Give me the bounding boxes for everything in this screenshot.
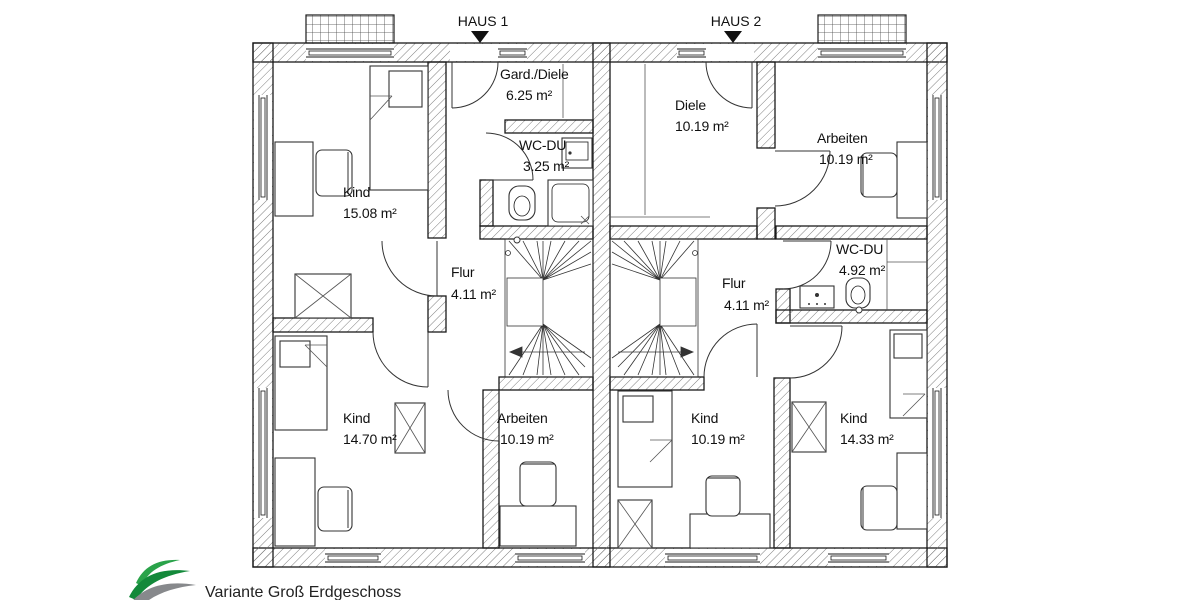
room-area: 15.08 m² [343, 205, 397, 221]
light-well-grate-right [818, 15, 906, 43]
entrance-opening-haus1 [450, 44, 498, 61]
room-area: 4.92 m² [839, 262, 886, 278]
shower [548, 180, 593, 226]
room-name: Kind [343, 410, 370, 426]
room-area: 10.19 m² [675, 118, 729, 134]
room-area: 3.25 m² [523, 158, 570, 174]
haus1-pointer-icon [471, 31, 489, 43]
chair [318, 487, 352, 531]
wardrobe [395, 403, 425, 453]
floor-plan-page: HAUS 1 HAUS 2 [0, 0, 1200, 600]
haus2-label: HAUS 2 [711, 13, 762, 29]
washbasin [800, 286, 834, 308]
walls [253, 43, 947, 567]
room-name: Kind [343, 184, 370, 200]
desk [275, 458, 315, 546]
room-name: Kind [840, 410, 867, 426]
stair-direction-arrow-icon [681, 347, 693, 357]
room-area: 4.11 m² [451, 286, 497, 302]
haus2-pointer-icon [724, 31, 742, 43]
desk [275, 142, 313, 216]
haus1-marker: HAUS 1 [458, 13, 509, 43]
desk [500, 506, 576, 546]
desk [690, 514, 770, 548]
toilet [509, 186, 535, 220]
room-name: Arbeiten [497, 410, 548, 426]
room-name: Gard./Diele [500, 66, 569, 82]
window [828, 549, 889, 566]
room-name: Flur [722, 275, 746, 291]
light-well-grate-left [306, 15, 394, 43]
window [254, 95, 272, 200]
bed [275, 336, 327, 430]
chair [706, 476, 740, 516]
chair [861, 486, 897, 530]
stair-haus1 [505, 239, 593, 377]
room-name: WC-DU [836, 241, 883, 257]
haus2-marker: HAUS 2 [711, 13, 762, 43]
room-area: 14.70 m² [343, 431, 397, 447]
room-area: 6.25 m² [506, 87, 553, 103]
plan-caption: Variante Groß Erdgeschoss [205, 584, 401, 600]
window [325, 549, 381, 566]
window [306, 44, 394, 61]
wardrobe [295, 274, 351, 318]
entrance-opening-haus2 [706, 44, 754, 61]
window [498, 44, 527, 61]
wardrobe [618, 500, 652, 548]
shower-partition [887, 239, 927, 310]
room-area: 14.33 m² [840, 431, 894, 447]
room-name: Arbeiten [817, 130, 868, 146]
room-area: 10.19 m² [819, 151, 873, 167]
window [677, 44, 706, 61]
room-area: 10.19 m² [691, 431, 745, 447]
bed [890, 330, 927, 418]
company-logo-icon [124, 560, 196, 600]
window [254, 388, 272, 518]
bed [618, 391, 672, 487]
room-name: Diele [675, 97, 706, 113]
room-area: 10.19 m² [500, 431, 554, 447]
floor-plan-drawing: HAUS 1 HAUS 2 [0, 0, 1200, 600]
desk [897, 453, 927, 529]
stair-direction-arrow-icon [510, 347, 522, 357]
wardrobe [792, 402, 826, 452]
room-name: Kind [691, 410, 718, 426]
window [665, 549, 760, 566]
pivot-dot [856, 307, 862, 313]
room-name: WC-DU [519, 137, 566, 153]
room-area: 4.11 m² [724, 297, 770, 313]
window [928, 388, 946, 518]
toilet [846, 278, 870, 308]
room-name: Flur [451, 264, 475, 280]
bed [370, 66, 428, 190]
pivot-dot [514, 237, 520, 243]
stair-haus2 [610, 239, 698, 377]
desk [897, 142, 927, 218]
chair [520, 462, 556, 506]
window [928, 95, 946, 200]
window [818, 44, 906, 61]
window [515, 549, 585, 566]
haus1-label: HAUS 1 [458, 13, 509, 29]
